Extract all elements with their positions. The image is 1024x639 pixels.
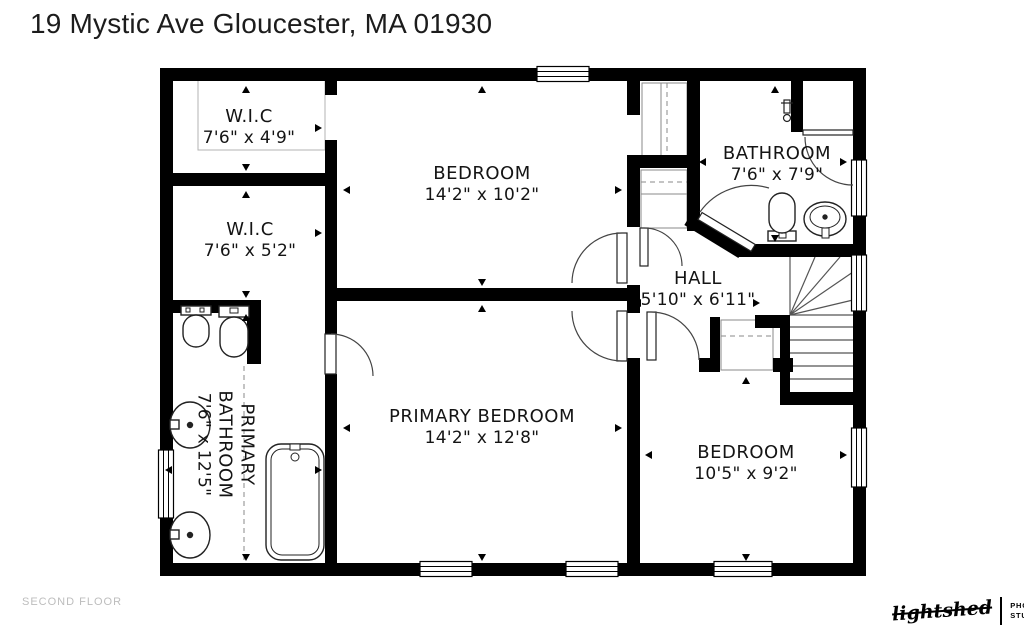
room-name: W.I.C [174, 219, 326, 241]
bathtub-icon [266, 444, 324, 560]
room-label-wic-top: W.I.C 7'6" x 4'9" [173, 106, 325, 149]
room-name: PRIMARY BEDROOM [357, 406, 607, 428]
sink-icon [804, 202, 846, 238]
room-dimensions: 5'10" x 6'11" [628, 290, 768, 311]
dimension-arrow-icon [343, 424, 350, 432]
photographer-logo: lightshed PHOTOGRAPHY STUDIO [892, 597, 1024, 625]
dimension-arrow-icon [742, 377, 750, 384]
room-label-bedroom-top: BEDROOM 14'2" x 10'2" [357, 163, 607, 206]
floorplan-graphic [0, 0, 1024, 639]
dimension-arrow-icon [615, 186, 622, 194]
room-dimensions: 10'5" x 9'2" [646, 464, 846, 485]
room-name: BATHROOM [677, 143, 877, 165]
window [159, 450, 174, 518]
room-name: BEDROOM [357, 163, 607, 185]
room-label-wic-middle: W.I.C 7'6" x 5'2" [174, 219, 326, 262]
room-name: W.I.C [173, 106, 325, 128]
logo-studio-text: PHOTOGRAPHY STUDIO [1010, 601, 1024, 621]
room-label-primary-bedroom: PRIMARY BEDROOM 14'2" x 12'8" [357, 406, 607, 449]
room-dimensions: 14'2" x 12'8" [357, 428, 607, 449]
door-bedroom-bottom [647, 312, 699, 360]
floorplan-page: 19 Mystic Ave Gloucester, MA 01930 [0, 0, 1024, 639]
door-primary-bathroom [325, 334, 373, 376]
room-label-primary-bathroom: PRIMARY BATHROOM 7'6" x 12'5" [193, 350, 258, 540]
dimension-arrow-icon [478, 279, 486, 286]
toilet-icon [768, 193, 796, 241]
dimension-arrow-icon [742, 554, 750, 561]
dimension-arrow-icon [242, 86, 250, 93]
door-hall-closet [640, 228, 682, 266]
window [714, 562, 772, 577]
dimension-arrow-icon [343, 186, 350, 194]
room-name: PRIMARY BATHROOM [214, 350, 258, 540]
logo-script-text: lightshed [891, 597, 992, 626]
dimension-arrow-icon [478, 305, 486, 312]
room-dimensions: 7'6" x 4'9" [173, 128, 325, 149]
room-name: HALL [628, 268, 768, 290]
door-primary-bedroom [572, 311, 627, 361]
dimension-arrow-icon [242, 164, 250, 171]
toilet-icon [181, 306, 211, 347]
dimension-arrow-icon [478, 86, 486, 93]
dimension-arrow-icon [615, 424, 622, 432]
door-bedroom-top [572, 233, 627, 283]
dimension-arrow-icon [771, 86, 779, 93]
stairs-icon [790, 257, 853, 379]
window [852, 255, 867, 311]
room-dimensions: 7'6" x 5'2" [174, 241, 326, 262]
dimension-arrow-icon [242, 554, 250, 561]
room-label-bathroom: BATHROOM 7'6" x 7'9" [677, 143, 877, 186]
room-name: BEDROOM [646, 442, 846, 464]
window [852, 428, 867, 487]
room-label-hall: HALL 5'10" x 6'11" [628, 268, 768, 311]
room-label-bedroom-bottom: BEDROOM 10'5" x 9'2" [646, 442, 846, 485]
room-dimensions: 14'2" x 10'2" [357, 185, 607, 206]
window [420, 562, 472, 577]
logo-divider [1000, 597, 1002, 625]
window [537, 67, 589, 82]
room-dimensions: 7'6" x 7'9" [677, 165, 877, 186]
dimension-arrow-icon [242, 291, 250, 298]
dimension-arrow-icon [242, 191, 250, 198]
room-dimensions: 7'6" x 12'5" [193, 350, 214, 540]
window [566, 562, 618, 577]
floor-label: SECOND FLOOR [22, 596, 122, 608]
dimension-arrow-icon [478, 554, 486, 561]
